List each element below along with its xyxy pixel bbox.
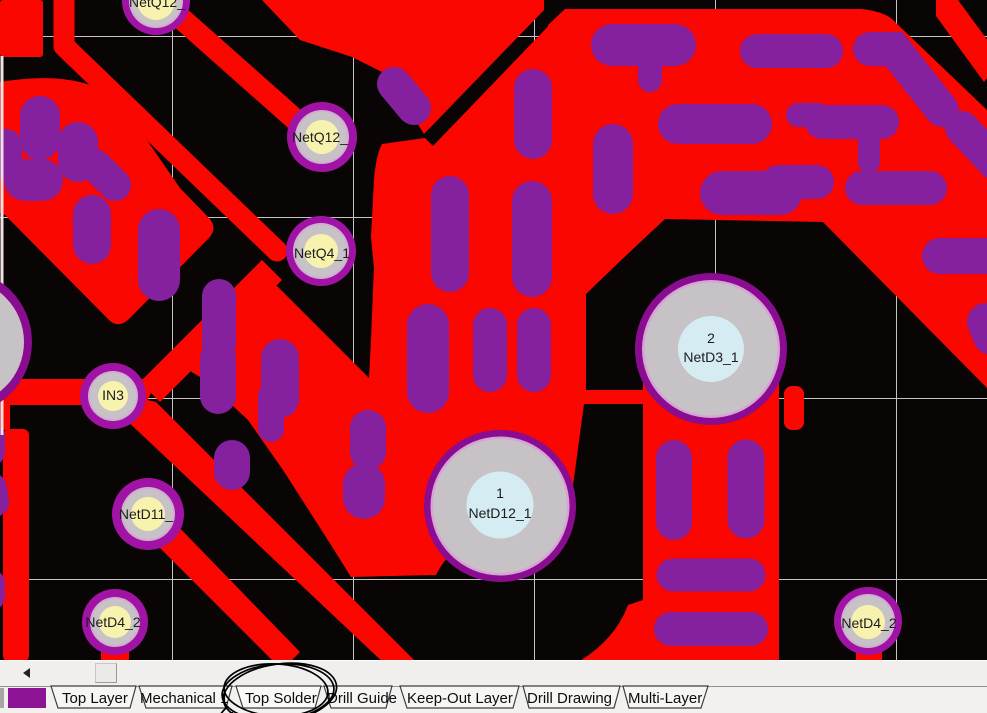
svg-text:2: 2 bbox=[707, 330, 715, 346]
svg-text:NetQ12_: NetQ12_ bbox=[292, 129, 348, 145]
svg-text:Top Layer: Top Layer bbox=[62, 690, 128, 707]
svg-text:NetD3_1: NetD3_1 bbox=[683, 349, 738, 365]
svg-text:NetD4_2: NetD4_2 bbox=[841, 615, 896, 631]
svg-text:Keep-Out Layer: Keep-Out Layer bbox=[407, 690, 513, 707]
svg-text:NetD4_2: NetD4_2 bbox=[85, 614, 140, 630]
svg-text:NetD12_1: NetD12_1 bbox=[468, 505, 531, 521]
svg-text:Drill Drawing: Drill Drawing bbox=[527, 690, 612, 707]
svg-text:1: 1 bbox=[496, 485, 504, 501]
svg-text:NetD11_: NetD11_ bbox=[119, 506, 173, 522]
svg-text:NetQ12_: NetQ12_ bbox=[129, 0, 185, 10]
svg-text:IN3: IN3 bbox=[102, 387, 124, 403]
svg-text:NetQ4_1: NetQ4_1 bbox=[294, 245, 350, 261]
svg-text:Multi-Layer: Multi-Layer bbox=[628, 690, 702, 707]
